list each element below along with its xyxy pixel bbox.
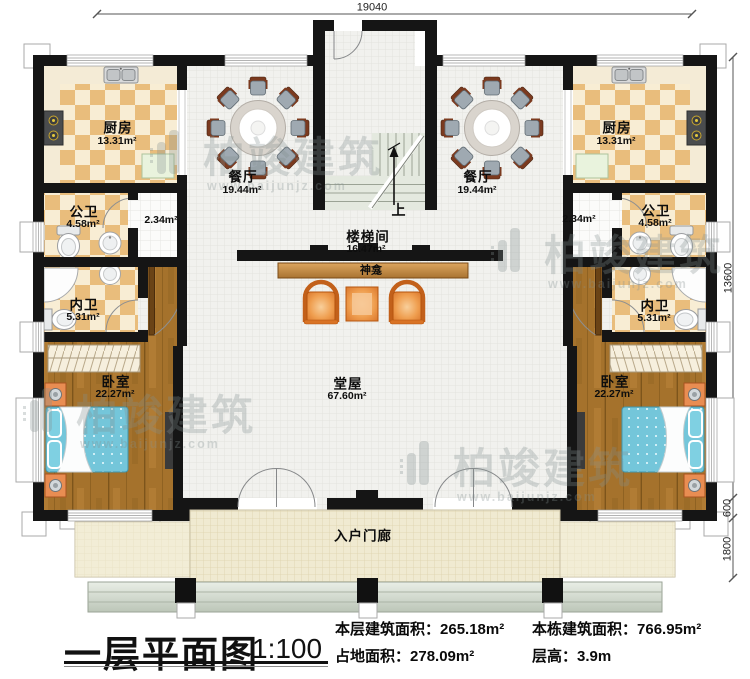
dim-top-width: 19040 (357, 3, 388, 14)
room-label-private-bath-right: 内卫 (641, 299, 670, 313)
dim-right-steps: 1800 (723, 537, 734, 561)
room-area-stair-hall: 16.47m² (346, 244, 385, 255)
entry-porch (75, 510, 675, 618)
toilet-icon (57, 226, 80, 259)
stat-total-area: 本栋建筑面积：766.95m² (532, 618, 701, 639)
room-area-bedroom-left: 22.27m² (95, 389, 134, 400)
bedroom-door-leaf (149, 264, 155, 335)
plan-title: 一层平面图 (64, 624, 259, 678)
room-area-corridor-left: 2.34m² (144, 215, 177, 226)
stove-icon (44, 111, 63, 145)
floor-plan-drawing: 柏竣建筑 www.baijunjz.com 柏竣建筑 www.baijunjz.… (0, 0, 750, 679)
floor-plan-page: 柏竣建筑 www.baijunjz.com 柏竣建筑 www.baijunjz.… (0, 0, 750, 679)
dim-right-porch: 600 (723, 499, 734, 517)
pillow (48, 441, 61, 468)
room-label-dining-left: 餐厅 (229, 170, 258, 184)
room-area-dining-right: 19.44m² (457, 185, 496, 196)
room-label-kitchen-left: 厨房 (104, 121, 133, 135)
shrine-label: 神龛 (360, 266, 382, 277)
stat-floor-height: 层高：3.9m (532, 645, 611, 666)
room-area-private-bath-left: 5.31m² (66, 312, 99, 323)
room-label-bedroom-right: 卧室 (601, 375, 630, 389)
stat-total-area-label: 本栋建筑面积： (532, 621, 637, 638)
stat-land-area: 占地面积：278.09m² (335, 645, 474, 666)
room-area-public-bath-left: 4.58m² (66, 219, 99, 230)
room-label-public-bath-right: 公卫 (642, 204, 671, 218)
stat-land-area-label: 占地面积： (335, 648, 410, 665)
room-area-kitchen-left: 13.31m² (97, 136, 136, 147)
stairs-up-label: 上 (392, 203, 407, 217)
title-underline (64, 661, 328, 664)
room-label-kitchen-right: 厨房 (603, 121, 632, 135)
svg-text:柏竣建筑: 柏竣建筑 (544, 232, 724, 279)
title-underline-thin (64, 666, 328, 667)
room-label-stair-hall: 楼梯间 (346, 230, 390, 244)
room-label-porch: 入户门廊 (334, 529, 392, 543)
dim-right-height: 13600 (724, 263, 735, 294)
room-area-hall: 67.60m² (327, 391, 366, 402)
stat-floor-area-label: 本层建筑面积： (335, 621, 440, 638)
stat-floor-area: 本层建筑面积：265.18m² (335, 618, 504, 639)
stat-floor-height-label: 层高： (532, 648, 577, 665)
nightstand (45, 474, 66, 497)
svg-text:www.baijunjz.com: www.baijunjz.com (456, 490, 597, 504)
kitchen-sink-icon (104, 67, 138, 83)
svg-text:www.baijunjz.com: www.baijunjz.com (79, 437, 220, 451)
svg-text:www.baijunjz.com: www.baijunjz.com (547, 277, 688, 291)
room-area-kitchen-right: 13.31m² (596, 136, 635, 147)
room-label-hall: 堂屋 (334, 377, 363, 391)
washbasin-icon (99, 232, 121, 254)
room-area-dining-left: 19.44m² (222, 185, 261, 196)
room-label-public-bath-left: 公卫 (70, 205, 99, 219)
stat-total-area-value: 766.95m² (637, 621, 701, 638)
room-label-private-bath-left: 内卫 (70, 298, 99, 312)
room-label-dining-right: 餐厅 (464, 170, 493, 184)
room-label-bedroom-left: 卧室 (102, 375, 131, 389)
stat-land-area-value: 278.09m² (410, 648, 474, 665)
room-area-corridor-right: 2.34m² (562, 214, 595, 225)
room-area-private-bath-right: 5.31m² (637, 313, 670, 324)
stat-floor-height-value: 3.9m (577, 648, 611, 665)
svg-text:柏竣建筑: 柏竣建筑 (453, 445, 633, 492)
room-area-public-bath-right: 4.58m² (638, 218, 671, 229)
stat-floor-area-value: 265.18m² (440, 621, 504, 638)
room-area-bedroom-right: 22.27m² (594, 389, 633, 400)
